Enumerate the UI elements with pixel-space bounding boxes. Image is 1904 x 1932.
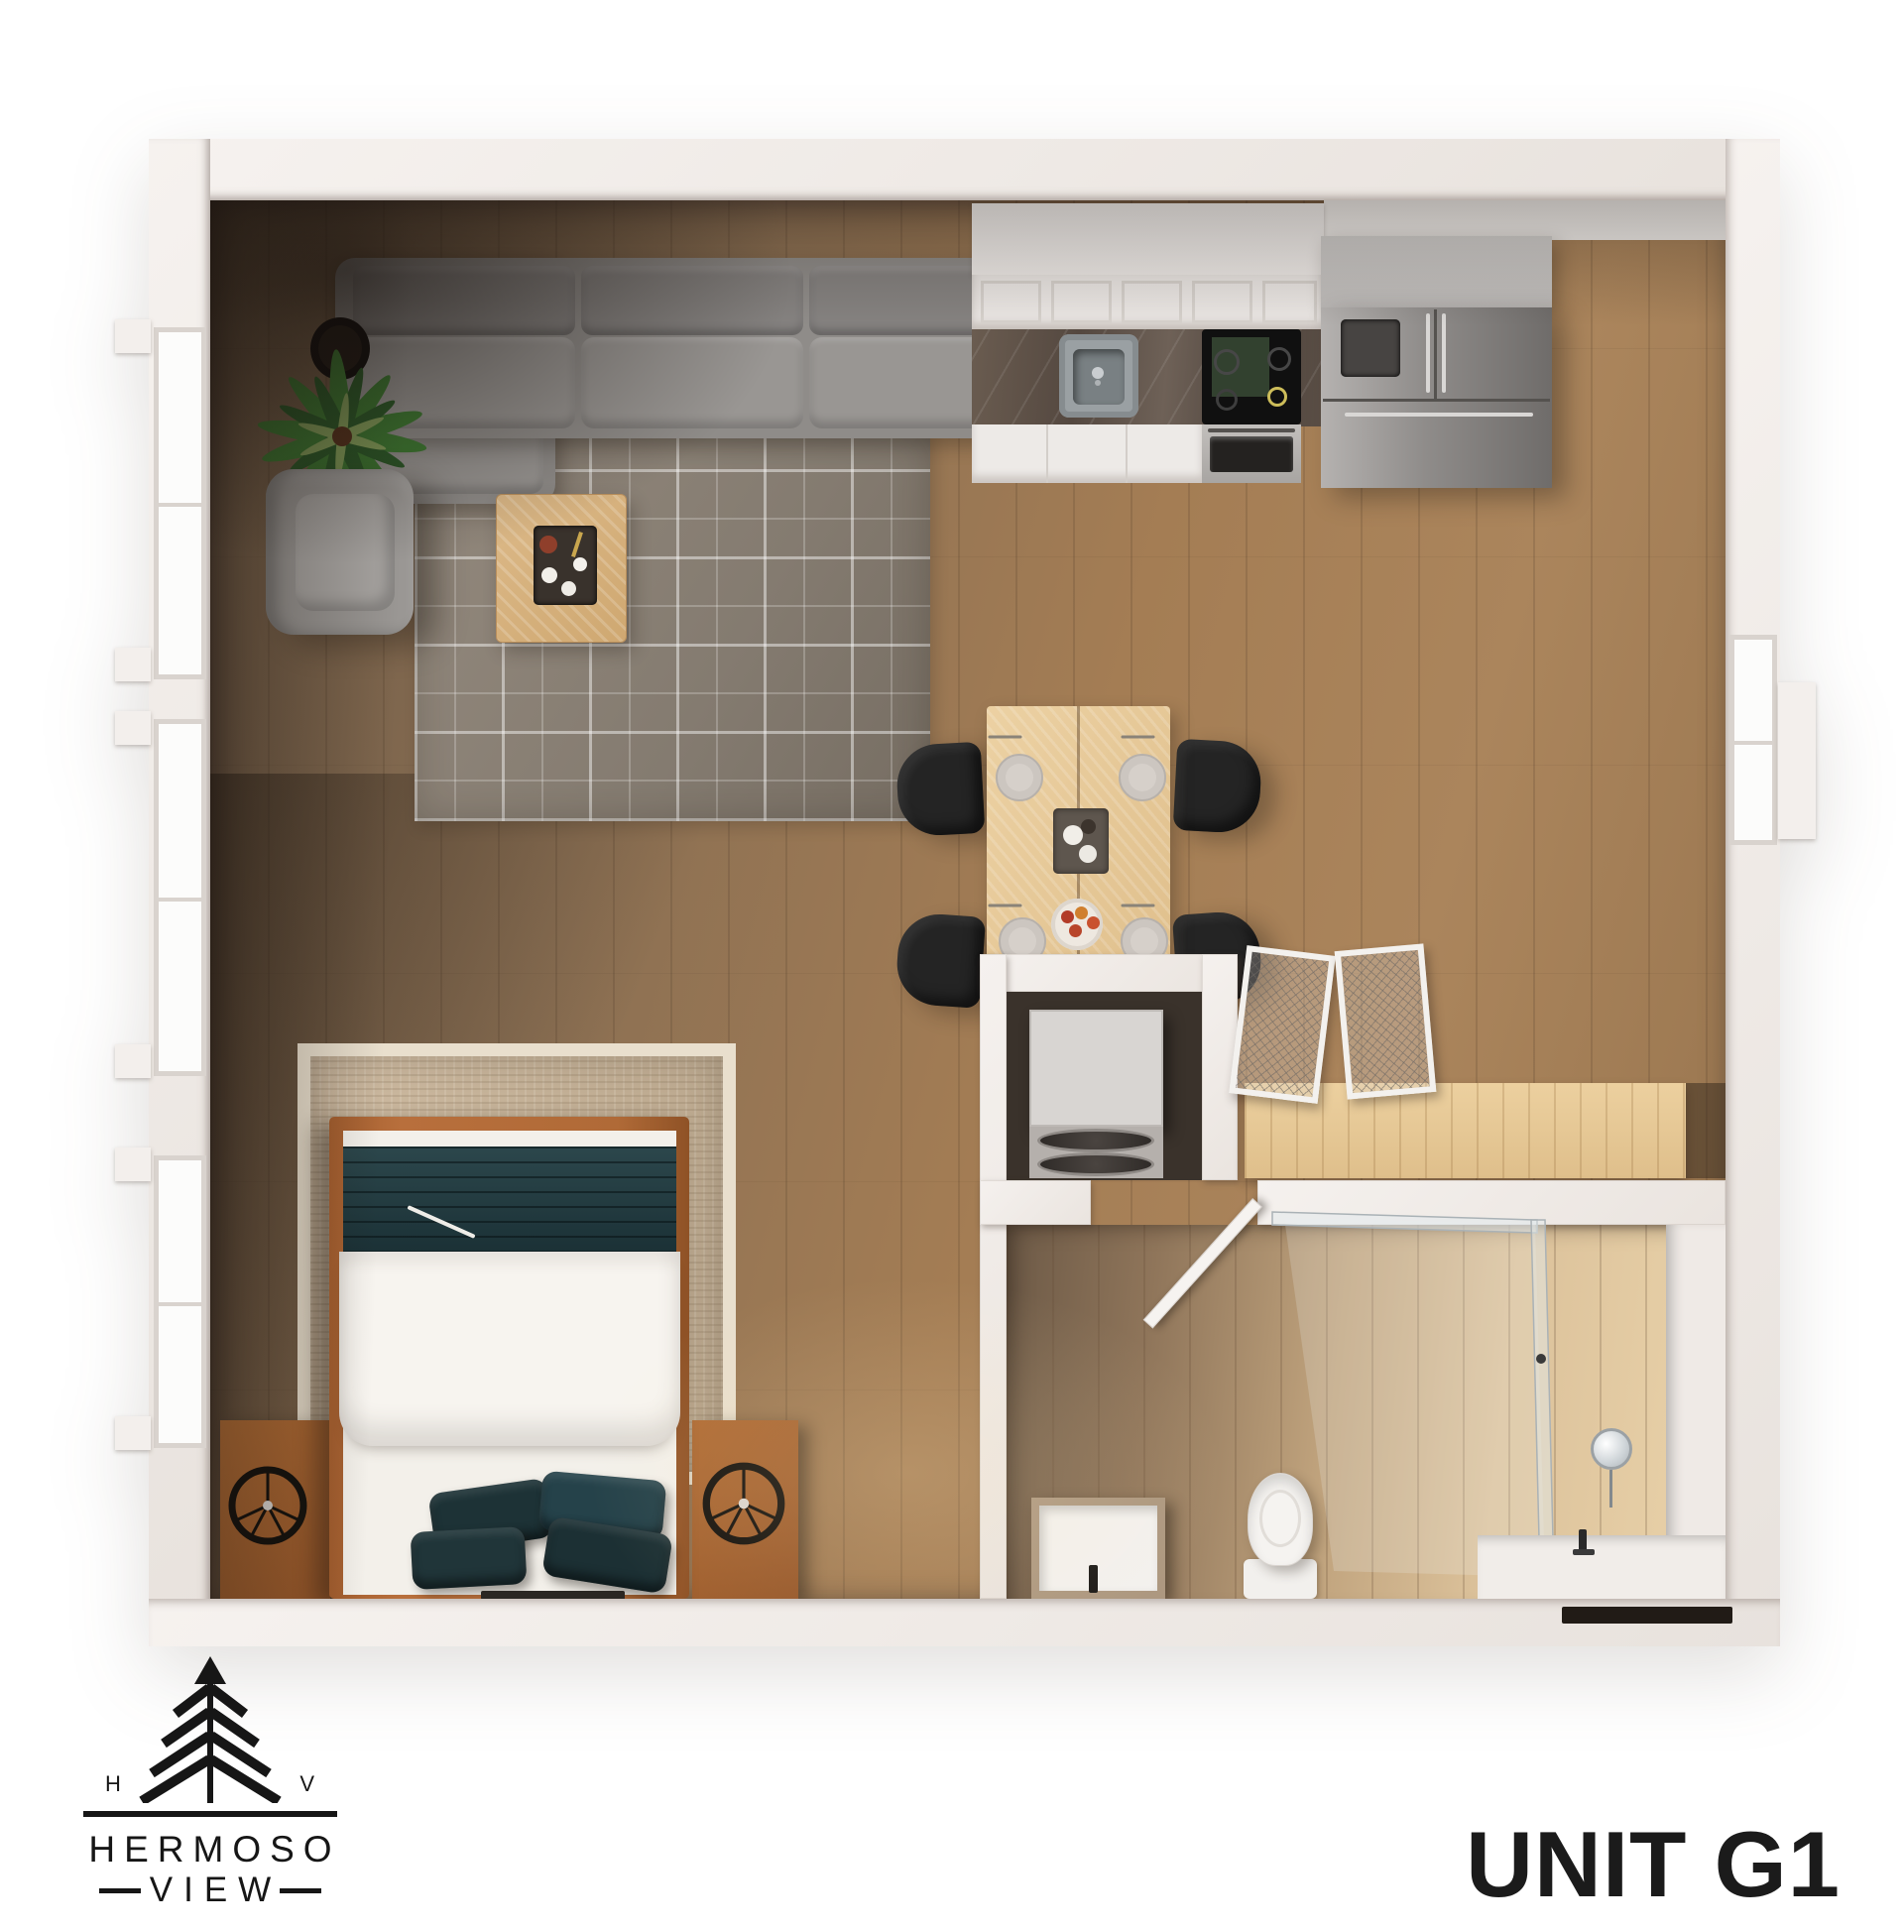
floorplan-sheet: H V HERMOSO VIEW UNIT G1 <box>0 0 1904 1932</box>
window-sill <box>115 1147 151 1181</box>
brand-wordmark-top: HERMOSO <box>61 1829 359 1871</box>
unit-title: UNIT G1 <box>1466 1811 1841 1918</box>
stone-sink-faucet <box>1089 1565 1098 1593</box>
teal-throw-blanket <box>343 1147 676 1252</box>
window-sill <box>1778 682 1816 839</box>
logo-rule <box>83 1811 337 1817</box>
monogram-v: V <box>299 1771 315 1797</box>
brand-logo: H V HERMOSO VIEW <box>61 1654 359 1912</box>
vanity-faucet-handle <box>1573 1549 1595 1555</box>
wordmark-dash-right <box>280 1888 321 1893</box>
window-sill <box>115 319 151 353</box>
wordmark-dash-left <box>99 1888 141 1893</box>
window <box>154 327 206 679</box>
exterior-wall-right <box>1725 139 1780 1646</box>
window-sill <box>115 648 151 681</box>
bathroom-window <box>1562 1607 1732 1624</box>
window <box>154 1155 206 1448</box>
wheel-clock-icon <box>226 1464 309 1547</box>
duvet <box>339 1252 680 1446</box>
window <box>1729 635 1777 845</box>
unit-floorplan <box>149 139 1780 1646</box>
bathroom-vanity-counter <box>1478 1535 1725 1599</box>
window <box>154 719 206 1076</box>
stone-sink <box>1031 1498 1165 1599</box>
pine-tree-icon <box>136 1654 285 1803</box>
window-sill <box>115 1416 151 1450</box>
exterior-wall-bottom <box>149 1599 1780 1646</box>
toilet-seat <box>1259 1490 1301 1547</box>
round-vanity-mirror <box>1591 1428 1632 1470</box>
window-sill <box>115 711 151 745</box>
mirror-stand <box>1609 1470 1612 1508</box>
window-sill <box>115 1044 151 1078</box>
wheel-clock-icon <box>700 1460 787 1547</box>
monogram-h: H <box>105 1771 122 1797</box>
pillow <box>411 1526 528 1590</box>
exterior-wall-top <box>149 139 1780 200</box>
